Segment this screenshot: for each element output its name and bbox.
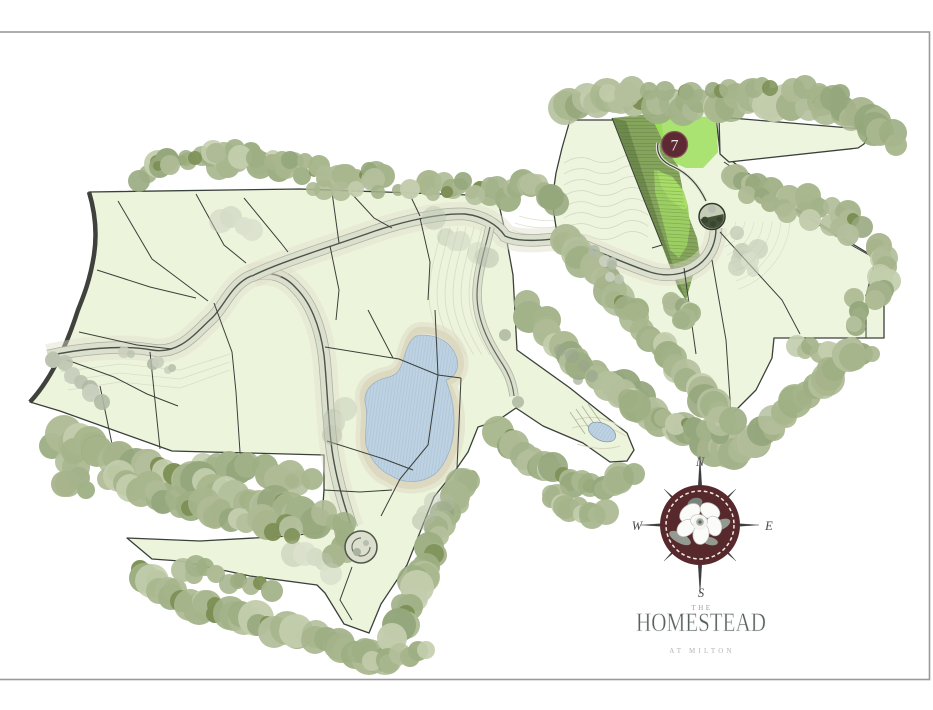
svg-text:W: W bbox=[632, 519, 644, 533]
svg-text:N: N bbox=[695, 455, 705, 469]
svg-text:E: E bbox=[764, 519, 773, 533]
svg-text:AT MILTON: AT MILTON bbox=[669, 647, 734, 655]
svg-text:7: 7 bbox=[671, 138, 679, 155]
svg-text:S: S bbox=[698, 586, 705, 600]
svg-text:HOMESTEAD: HOMESTEAD bbox=[636, 608, 766, 637]
